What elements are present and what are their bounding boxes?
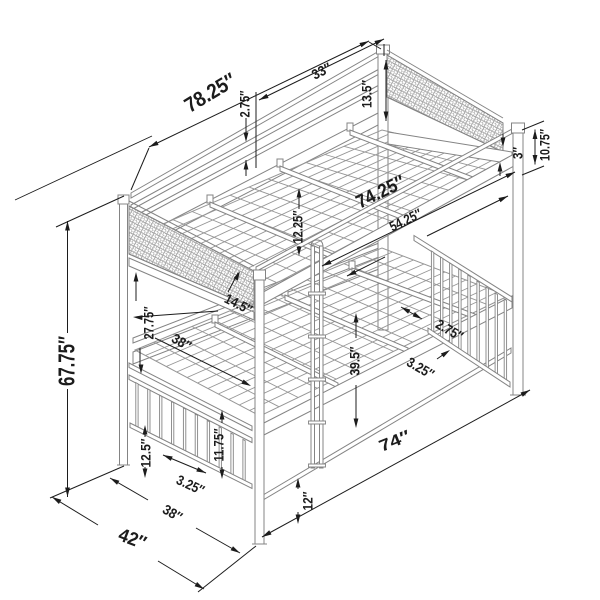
svg-text:27.75″: 27.75″ [141,306,157,339]
svg-text:13.5″: 13.5″ [359,80,375,108]
svg-text:12.25″: 12.25″ [290,210,306,243]
svg-text:12″: 12″ [300,491,316,510]
svg-text:39.5″: 39.5″ [347,346,363,375]
svg-text:2.75″: 2.75″ [237,90,253,117]
svg-text:11.75″: 11.75″ [211,428,227,461]
svg-text:67.75″: 67.75″ [54,336,80,386]
svg-text:3″: 3″ [511,147,526,159]
svg-text:12.5″: 12.5″ [138,438,154,467]
svg-text:10.75″: 10.75″ [538,129,553,161]
